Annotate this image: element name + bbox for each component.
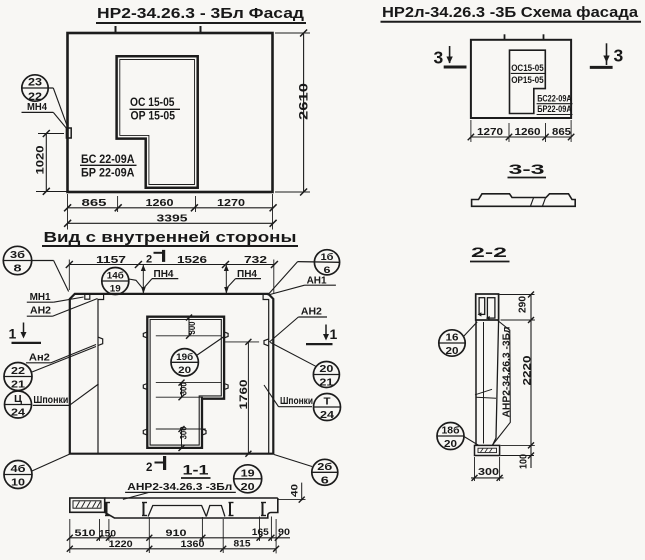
svg-text:НР2-34.26.3 - 3Бл Фасад: НР2-34.26.3 - 3Бл Фасад — [97, 6, 304, 22]
svg-text:21: 21 — [11, 380, 26, 391]
svg-text:1157: 1157 — [96, 254, 126, 266]
svg-text:1360: 1360 — [181, 539, 205, 550]
svg-text:1220: 1220 — [109, 539, 133, 550]
svg-text:2: 2 — [146, 462, 152, 474]
svg-text:300: 300 — [179, 382, 189, 395]
svg-text:23: 23 — [28, 77, 42, 89]
svg-text:Шпонки: Шпонки — [33, 395, 68, 406]
svg-text:6: 6 — [321, 475, 330, 486]
svg-text:865: 865 — [82, 197, 107, 209]
svg-text:19б: 19б — [176, 352, 193, 363]
svg-text:ОС 15-05: ОС 15-05 — [130, 97, 175, 109]
svg-text:18б: 18б — [442, 425, 460, 437]
svg-text:1-1: 1-1 — [183, 463, 210, 478]
svg-text:4б: 4б — [11, 463, 26, 475]
svg-text:16: 16 — [446, 333, 460, 344]
svg-text:510: 510 — [75, 528, 96, 539]
svg-text:БР 22-09А: БР 22-09А — [81, 168, 135, 180]
svg-text:Ан2: Ан2 — [29, 351, 50, 363]
svg-text:МН4: МН4 — [27, 101, 47, 113]
svg-text:1020: 1020 — [35, 146, 47, 175]
svg-text:3: 3 — [434, 48, 444, 68]
svg-text:1260: 1260 — [515, 127, 542, 138]
svg-text:300: 300 — [478, 466, 499, 478]
svg-text:20: 20 — [444, 439, 458, 450]
svg-text:1: 1 — [330, 326, 338, 342]
svg-text:ОР15-05: ОР15-05 — [511, 75, 544, 85]
svg-text:Шпонки: Шпонки — [280, 396, 313, 407]
svg-text:НР2л-34.26.3 -3Б Схема фасада: НР2л-34.26.3 -3Б Схема фасада — [382, 5, 639, 21]
svg-text:1526: 1526 — [177, 254, 207, 266]
svg-text:20: 20 — [446, 346, 460, 357]
svg-text:3395: 3395 — [157, 213, 188, 225]
svg-text:20: 20 — [178, 365, 191, 376]
svg-text:2-2: 2-2 — [471, 245, 507, 260]
svg-text:2610: 2610 — [299, 83, 311, 120]
svg-text:300: 300 — [179, 426, 189, 439]
svg-text:1270: 1270 — [217, 197, 245, 209]
svg-text:1760: 1760 — [238, 380, 250, 410]
svg-text:2: 2 — [146, 254, 152, 266]
svg-text:АНР2-34.26.3 -3Бл: АНР2-34.26.3 -3Бл — [127, 481, 232, 493]
svg-text:815: 815 — [234, 539, 252, 550]
svg-text:АН1: АН1 — [307, 274, 327, 286]
svg-text:3б: 3б — [10, 249, 25, 261]
svg-text:ОС15-05: ОС15-05 — [511, 63, 544, 73]
svg-text:150: 150 — [99, 529, 116, 540]
svg-text:Вид с внутренней стороны: Вид с внутренней стороны — [44, 230, 297, 246]
svg-text:24: 24 — [11, 408, 26, 419]
svg-text:1: 1 — [9, 326, 17, 342]
svg-text:1270: 1270 — [477, 127, 504, 138]
svg-text:40: 40 — [290, 484, 301, 497]
svg-text:20: 20 — [241, 482, 256, 493]
svg-text:1260: 1260 — [146, 197, 174, 209]
svg-text:22: 22 — [11, 366, 26, 377]
svg-text:24: 24 — [320, 410, 335, 421]
svg-text:732: 732 — [244, 254, 267, 266]
svg-text:10: 10 — [11, 478, 26, 489]
svg-text:3: 3 — [614, 46, 624, 66]
svg-text:19: 19 — [241, 469, 256, 480]
svg-text:290: 290 — [518, 296, 529, 313]
svg-text:910: 910 — [166, 528, 187, 539]
svg-text:8: 8 — [14, 264, 23, 275]
svg-text:БР22-09А: БР22-09А — [537, 104, 572, 114]
svg-text:21: 21 — [319, 378, 334, 389]
svg-text:ОР 15-05: ОР 15-05 — [131, 111, 176, 123]
svg-text:2б: 2б — [317, 461, 332, 473]
svg-text:Т: Т — [324, 397, 331, 408]
svg-text:165: 165 — [252, 527, 270, 538]
svg-text:Ц: Ц — [14, 394, 23, 405]
svg-text:МН1: МН1 — [30, 291, 51, 303]
svg-text:865: 865 — [552, 127, 571, 138]
svg-text:3-3: 3-3 — [509, 162, 546, 177]
svg-text:14б: 14б — [107, 271, 124, 282]
svg-text:90: 90 — [278, 527, 290, 538]
svg-text:БС 22-09А: БС 22-09А — [81, 154, 135, 166]
svg-text:100: 100 — [519, 454, 530, 469]
svg-text:1б: 1б — [321, 252, 334, 263]
svg-text:300: 300 — [187, 322, 197, 335]
svg-text:БС22-09А: БС22-09А — [537, 93, 572, 103]
svg-text:АН2: АН2 — [30, 305, 51, 317]
svg-text:АН2: АН2 — [301, 306, 322, 318]
svg-text:2220: 2220 — [522, 356, 534, 386]
svg-text:20: 20 — [319, 364, 334, 375]
